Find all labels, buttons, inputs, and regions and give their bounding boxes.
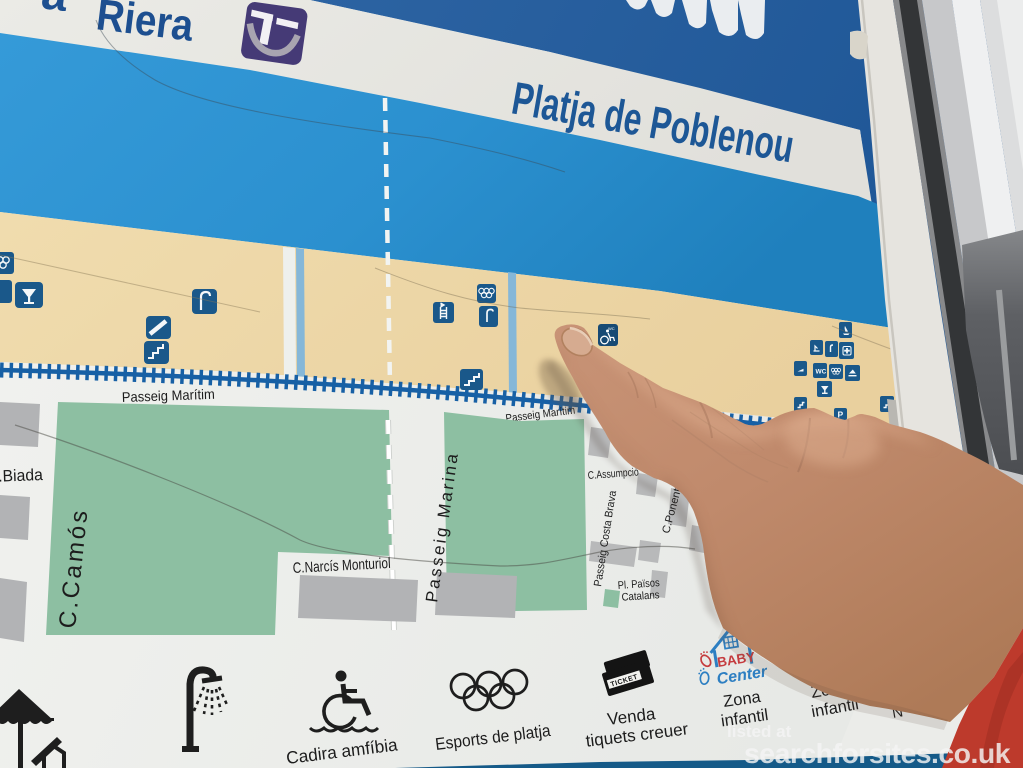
svg-text:WC: WC — [816, 369, 827, 376]
svg-text:C.Biada: C.Biada — [0, 466, 44, 486]
svg-text:Passeig Marítim: Passeig Marítim — [122, 386, 216, 405]
svg-text:WC: WC — [608, 326, 615, 331]
svg-text:P: P — [838, 410, 844, 420]
svg-text:searchforsites.co.uk: searchforsites.co.uk — [744, 738, 1011, 768]
